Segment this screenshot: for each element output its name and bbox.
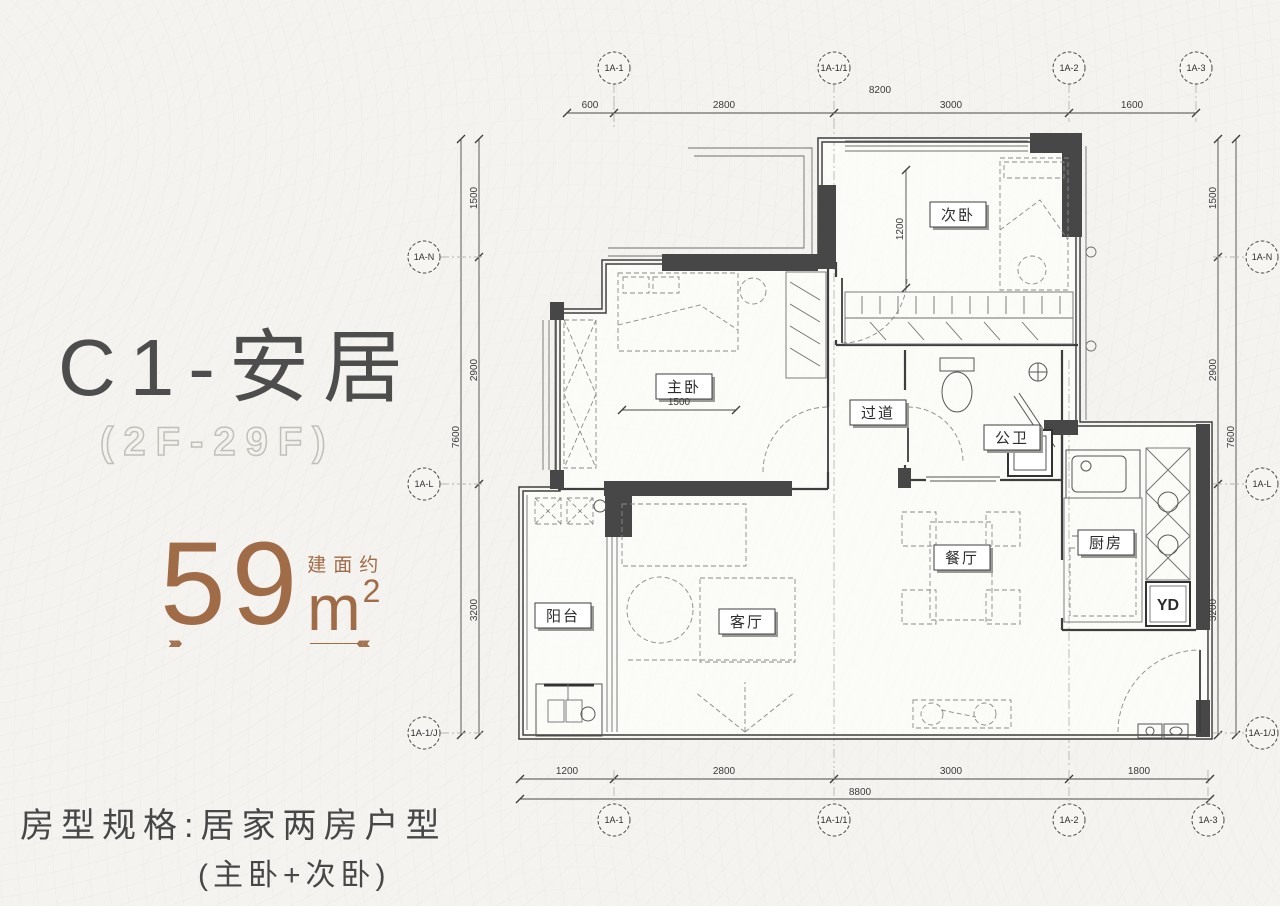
dim-bedroom1-width: 1500 [668,397,691,408]
dim-bottom: 1200 2800 3000 1800 8800 [516,766,1214,803]
dim-right-total: 7600 [1226,425,1237,448]
dim-right: 1500 2900 3200 7600 [1208,135,1240,739]
svg-text:2900: 2900 [1208,358,1219,381]
axis-bottom-3: 1A-2 [1059,815,1078,825]
floorplan-drawing: 次卧 主卧 过道 公卫 厨房 [0,0,1280,906]
svg-text:过道: 过道 [861,405,895,422]
axis-right-2: 1A-L [1252,479,1271,489]
svg-text:公卫: 公卫 [995,430,1029,447]
svg-text:YD: YD [1157,597,1179,614]
svg-text:次卧: 次卧 [941,207,975,224]
axis-top-1: 1A-1 [604,63,623,73]
room-label-hallway: 过道 [850,400,909,428]
room-label-bedroom2: 次卧 [930,202,989,230]
svg-text:3000: 3000 [940,766,963,777]
axis-bottom-4: 1A-3 [1198,815,1217,825]
dim-bottom-total: 8800 [849,787,872,798]
svg-text:客厅: 客厅 [730,614,764,631]
plan-underlay [521,140,1210,737]
svg-text:2800: 2800 [713,100,736,111]
dim-left: 1500 2900 3200 7600 [451,135,483,739]
dim-bedroom2-width: 1200 [895,217,906,240]
svg-text:3200: 3200 [1208,598,1219,621]
svg-text:2900: 2900 [469,358,480,381]
floorplan-page: C1-安居 (2F-29F) 59 建面约 m2 ›››› ‹‹‹‹ 房型规格:… [0,0,1280,906]
svg-text:1200: 1200 [556,766,579,777]
room-label-balcony: 阳台 [535,603,594,631]
axis-left-3: 1A-1/J [411,728,438,738]
axis-left-1: 1A-N [414,252,435,262]
room-label-yd: YD [1146,582,1190,626]
svg-text:阳台: 阳台 [546,608,580,625]
svg-text:1600: 1600 [1121,100,1144,111]
room-label-dining: 餐厅 [934,545,993,573]
svg-text:1800: 1800 [1128,766,1151,777]
svg-text:3200: 3200 [469,598,480,621]
svg-text:餐厅: 餐厅 [945,550,979,567]
axis-left-2: 1A-L [414,479,433,489]
dim-top: 600 2800 3000 1600 8200 [563,85,1200,117]
axis-bottom-2: 1A-1/1 [821,815,848,825]
axis-top-2: 1A-1/1 [821,63,848,73]
svg-text:3000: 3000 [940,100,963,111]
axis-top-4: 1A-3 [1186,63,1205,73]
room-label-bath: 公卫 [984,425,1043,453]
dim-left-total: 7600 [451,425,462,448]
svg-text:主卧: 主卧 [667,379,701,396]
room-label-living: 客厅 [719,609,778,637]
axis-bottom-1: 1A-1 [604,815,623,825]
dim-top-total: 8200 [869,85,892,96]
axis-top-3: 1A-2 [1059,63,1078,73]
svg-text:2800: 2800 [713,766,736,777]
room-label-kitchen: 厨房 [1078,530,1137,558]
svg-text:1500: 1500 [1208,186,1219,209]
svg-text:厨房: 厨房 [1089,535,1123,552]
axis-right-3: 1A-1/J [1249,728,1276,738]
svg-text:600: 600 [582,100,599,111]
axis-right-1: 1A-N [1252,252,1273,262]
svg-text:1500: 1500 [469,186,480,209]
